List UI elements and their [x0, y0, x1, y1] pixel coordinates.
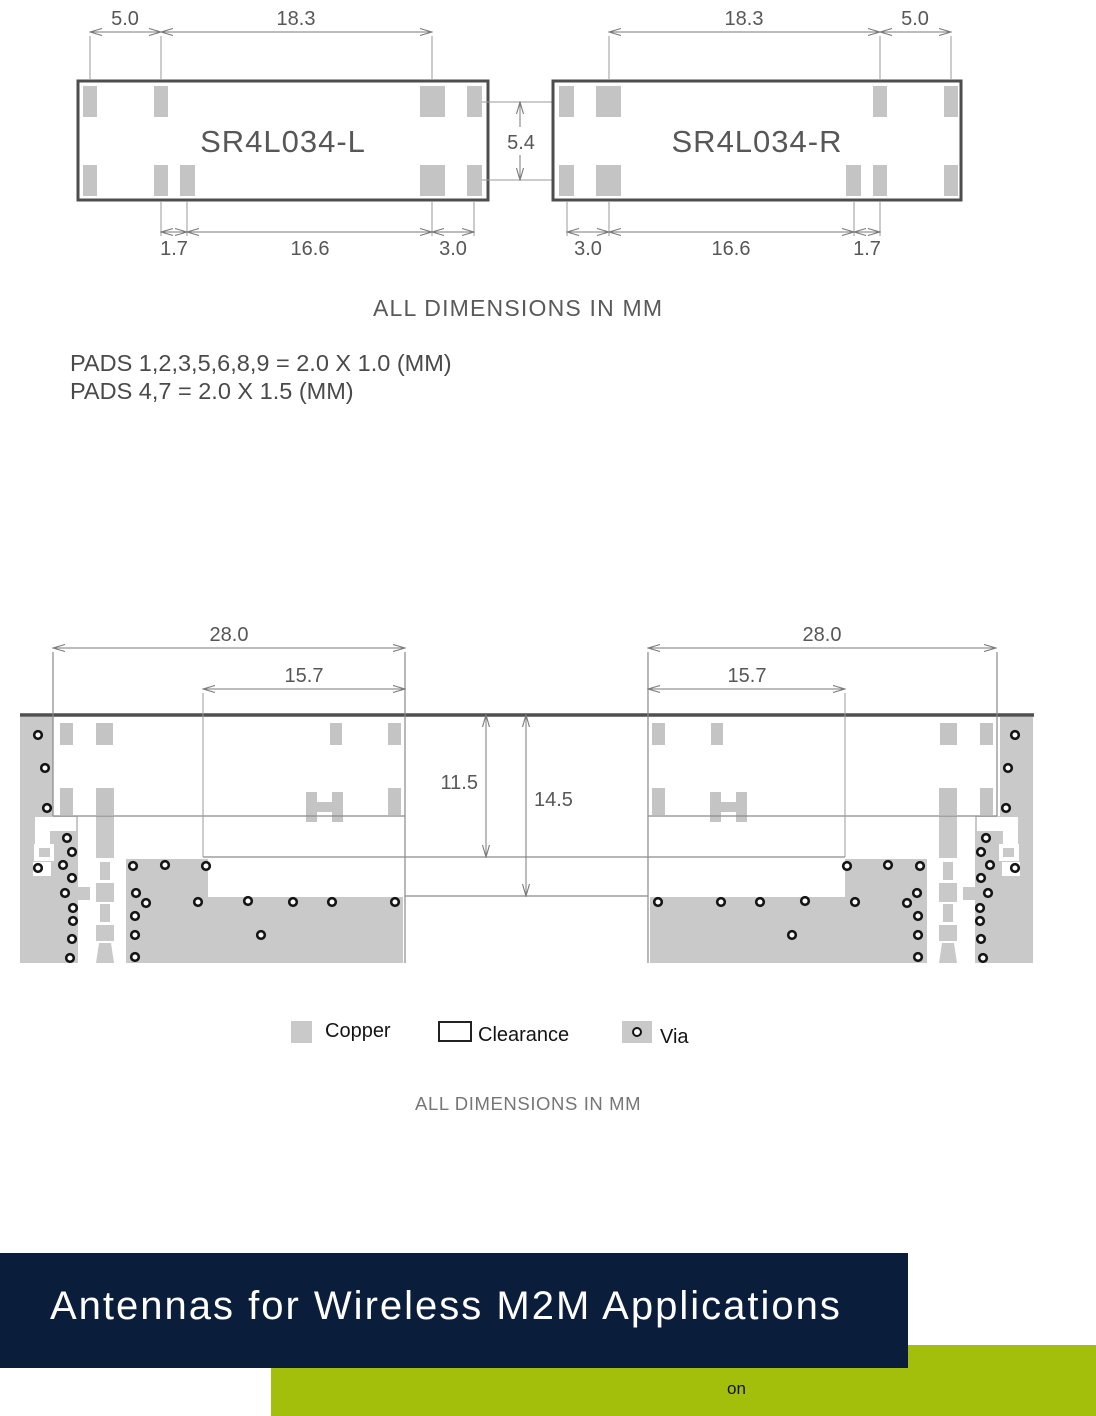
module-left-title: SR4L034-L: [200, 124, 366, 159]
dim-label: 5.0: [901, 8, 929, 30]
via-swatch-icon: [622, 1021, 652, 1043]
pad: [939, 788, 957, 815]
via: [34, 864, 42, 872]
copper-island: [1003, 848, 1014, 857]
pad: [96, 723, 113, 745]
pad: [980, 723, 993, 745]
copper-trace: [939, 883, 957, 902]
clearance-swatch-icon: [438, 1021, 472, 1042]
pad: [944, 165, 958, 196]
pad: [83, 165, 97, 196]
antenna-technical-drawing: SR4L034-L SR4L034-R 5.0 18.3: [0, 0, 1096, 1000]
pad-size-notes: PADS 1,2,3,5,6,8,9 = 2.0 X 1.0 (MM) PADS…: [70, 350, 452, 405]
mechanical-drawing: SR4L034-L SR4L034-R 5.0 18.3: [78, 8, 961, 260]
dim-label: 5.0: [111, 8, 139, 30]
via: [43, 804, 51, 812]
pad: [652, 723, 665, 745]
via: [1004, 764, 1012, 772]
feed-pad-bridge: [315, 802, 334, 812]
dim-label: 1.7: [160, 238, 188, 260]
dim-gap: 5.4: [503, 102, 539, 180]
copper-trace: [943, 904, 953, 922]
via: [202, 862, 210, 870]
via: [717, 898, 725, 906]
legend-label-copper: Copper: [325, 1020, 391, 1043]
pad-size-note-line2: PADS 4,7 = 2.0 X 1.5 (MM): [70, 378, 452, 406]
pad: [388, 723, 401, 745]
pad: [873, 86, 887, 117]
via: [68, 874, 76, 882]
copper-trace: [939, 925, 957, 941]
via: [977, 935, 985, 943]
via: [69, 904, 77, 912]
copper-pad: [963, 887, 983, 900]
via: [976, 917, 984, 925]
dim-label: 1.7: [853, 238, 881, 260]
footprint-dims: 28.0 15.7 28.0 15.7 11.5 14.5: [53, 624, 996, 896]
dim-label: 14.5: [534, 789, 573, 811]
via: [328, 898, 336, 906]
dims-bottom-left: 1.7 16.6 3.0: [160, 202, 474, 260]
via: [977, 848, 985, 856]
module-right-title: SR4L034-R: [672, 124, 843, 159]
via: [61, 889, 69, 897]
pad: [420, 86, 445, 117]
via: [979, 954, 987, 962]
copper-ground-plane: [126, 859, 403, 963]
dims-top-right: 18.3 5.0: [609, 8, 951, 79]
via: [194, 898, 202, 906]
via: [131, 953, 139, 961]
pad: [83, 86, 97, 117]
dim-label: 3.0: [439, 238, 467, 260]
copper-trace: [96, 943, 114, 963]
via: [986, 861, 994, 869]
pad: [180, 165, 195, 196]
via: [1002, 804, 1010, 812]
legend-label-via: Via: [660, 1026, 689, 1049]
via: [68, 935, 76, 943]
copper-trace: [100, 904, 110, 922]
via: [913, 889, 921, 897]
pad: [330, 723, 342, 745]
copper-island: [39, 848, 50, 857]
dim-label: 15.7: [285, 665, 324, 687]
via: [843, 862, 851, 870]
via: [391, 898, 399, 906]
via: [914, 931, 922, 939]
pad: [873, 165, 887, 196]
pad: [944, 86, 958, 117]
dim-label: 28.0: [803, 624, 842, 646]
via: [1011, 864, 1019, 872]
via: [914, 912, 922, 920]
dim-label: 16.6: [291, 238, 330, 260]
dim-label: 3.0: [574, 238, 602, 260]
via: [161, 861, 169, 869]
footer-title: Antennas for Wireless M2M Applications: [50, 1284, 842, 1329]
via: [66, 954, 74, 962]
via: [916, 862, 924, 870]
copper-trace: [96, 883, 114, 902]
pad: [559, 165, 574, 196]
pad: [980, 788, 993, 815]
via: [914, 953, 922, 961]
dim-label: 18.3: [725, 8, 764, 30]
pad: [467, 165, 482, 196]
pad: [940, 723, 957, 745]
via: [801, 897, 809, 905]
dimensions-note-top: ALL DIMENSIONS IN MM: [373, 295, 703, 322]
pad: [60, 723, 73, 745]
via: [244, 897, 252, 905]
copper-ground-plane: [650, 859, 927, 963]
dims-bottom-right: 3.0 16.6 1.7: [567, 202, 881, 260]
via: [257, 931, 265, 939]
pad: [652, 788, 665, 815]
via: [63, 834, 71, 842]
via: [977, 874, 985, 882]
pad: [467, 86, 482, 117]
feed-pad-bridge: [719, 802, 738, 812]
pad: [388, 788, 401, 815]
dim-label: 15.7: [728, 665, 767, 687]
pad: [96, 788, 114, 815]
copper-trace: [943, 862, 953, 880]
footprint-pads-right: [652, 723, 993, 822]
copper-pad: [70, 887, 90, 900]
copper-swatch-icon: [291, 1021, 312, 1043]
via: [1011, 731, 1019, 739]
clearance-cutout: [1003, 817, 1018, 844]
dims-top-left: 5.0 18.3: [90, 8, 432, 79]
pad: [154, 86, 168, 117]
module-right: SR4L034-R: [553, 81, 961, 200]
pad: [596, 165, 621, 196]
dim-label: 16.6: [712, 238, 751, 260]
copper-trace: [939, 943, 957, 963]
legend-label-clearance: Clearance: [478, 1024, 569, 1047]
copper-trace: [100, 862, 110, 880]
via: [142, 899, 150, 907]
copper-trace: [96, 925, 114, 941]
copper-trace: [96, 816, 114, 858]
via: [982, 834, 990, 842]
footprint-pads-left: [60, 723, 401, 822]
via: [756, 898, 764, 906]
copper-right: [650, 717, 1033, 963]
via: [131, 931, 139, 939]
via: [788, 931, 796, 939]
via: [654, 898, 662, 906]
via: [884, 861, 892, 869]
clearance-cutout: [35, 817, 50, 844]
via: [976, 904, 984, 912]
pad: [846, 165, 861, 196]
dim-label: 5.4: [507, 132, 535, 154]
via: [851, 898, 859, 906]
via: [132, 889, 140, 897]
dimensions-note-bottom: ALL DIMENSIONS IN MM: [415, 1093, 641, 1115]
footprint-drawing: 28.0 15.7 28.0 15.7 11.5 14.5: [20, 624, 1034, 963]
pad: [559, 86, 574, 117]
pad: [596, 86, 621, 117]
via: [984, 889, 992, 897]
via: [129, 862, 137, 870]
footer-overlay-text: on: [727, 1379, 746, 1399]
pad: [420, 165, 445, 196]
via: [903, 899, 911, 907]
via: [41, 764, 49, 772]
module-left: SR4L034-L: [78, 81, 557, 200]
via: [59, 861, 67, 869]
via: [69, 917, 77, 925]
dim-label: 11.5: [441, 772, 478, 794]
copper-left: [20, 717, 403, 963]
via-icon: [632, 1027, 642, 1037]
dim-label: 28.0: [210, 624, 249, 646]
pad: [711, 723, 723, 745]
via: [68, 848, 76, 856]
via: [34, 731, 42, 739]
pad: [154, 165, 168, 196]
copper-trace: [939, 816, 957, 858]
pad-size-note-line1: PADS 1,2,3,5,6,8,9 = 2.0 X 1.0 (MM): [70, 350, 452, 378]
via: [289, 898, 297, 906]
pad: [60, 788, 73, 815]
dim-label: 18.3: [277, 8, 316, 30]
via: [131, 912, 139, 920]
